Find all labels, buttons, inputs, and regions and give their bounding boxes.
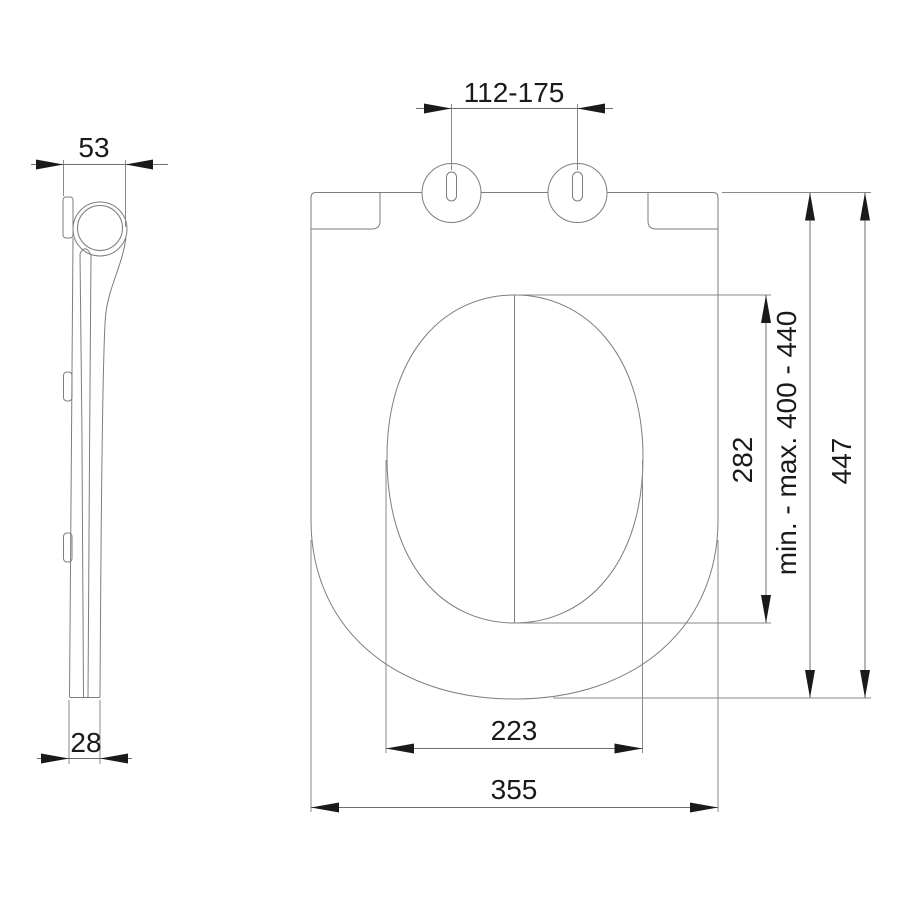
side-ring-inner-edge (80, 249, 91, 697)
dim-label-opening-length: 282 (727, 437, 758, 484)
dimension-side-depth: 53 (31, 132, 168, 170)
dim-label-hinge-spacing: 112-175 (464, 77, 565, 108)
hinge-notch-left (311, 193, 380, 230)
side-back-edge (70, 238, 74, 697)
dim-label-overall-length: 447 (826, 438, 857, 485)
dim-label-install-range: min. - max. 400 - 440 (771, 311, 802, 576)
plan-view (311, 164, 718, 700)
dimension-overall-length: 447 (826, 193, 870, 699)
side-view (63, 197, 127, 698)
dim-label-side-depth: 53 (78, 132, 109, 163)
side-hinge-inner-circle (78, 206, 123, 251)
dim-label-overall-width: 355 (491, 774, 538, 805)
hinge-notch-right (648, 193, 718, 230)
side-lid-edge (100, 238, 126, 697)
dimension-install-range: min. - max. 400 - 440 (771, 193, 815, 699)
hinge-slot-right (573, 172, 583, 201)
technical-drawing-svg: 112-175 53 28 223 355 282 (0, 0, 900, 900)
dimension-opening-width: 223 (386, 715, 643, 754)
dimension-opening-length: 282 (727, 295, 771, 623)
side-hinge-tab (63, 197, 73, 238)
dimension-overall-width: 355 (311, 774, 718, 813)
side-hinge-outer-circle (73, 202, 127, 256)
dim-label-side-bottom: 28 (70, 727, 101, 758)
dimension-hinge-spacing: 112-175 (416, 77, 613, 114)
technical-drawing-page: 112-175 53 28 223 355 282 (0, 0, 900, 900)
dimension-side-bottom: 28 (37, 727, 132, 764)
dim-label-opening-width: 223 (491, 715, 538, 746)
side-bumper-upper (64, 372, 73, 401)
hinge-slot-left (447, 172, 457, 201)
